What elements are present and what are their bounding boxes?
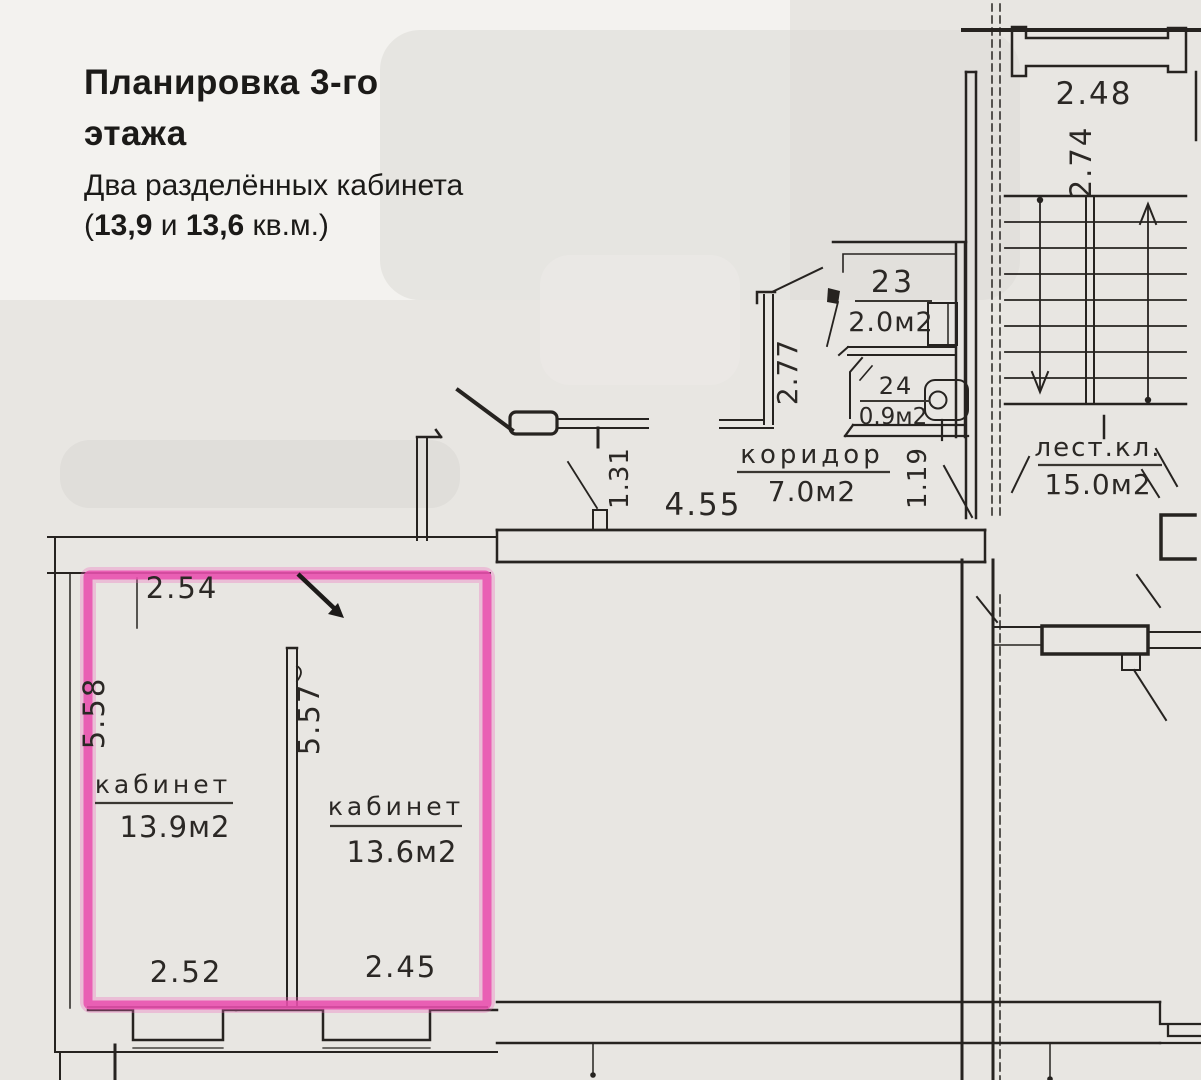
sink-counter	[458, 390, 648, 447]
dim-4-55: 4.55	[664, 487, 741, 523]
floor-plan-scan: Планировка 3-го этажа Два разделённых ка…	[0, 0, 1201, 1080]
dim-2-77: 2.77	[771, 339, 804, 405]
dim-5-57: 5.57	[292, 683, 326, 756]
area-note-prefix: (	[84, 209, 94, 242]
dim-2-48: 2.48	[1055, 76, 1132, 112]
room-23-area: 2.0м2	[848, 307, 934, 338]
dim-2-45: 2.45	[365, 950, 438, 984]
smudge-patch	[60, 440, 460, 508]
dim-5-58: 5.58	[77, 677, 111, 750]
door-jamb	[593, 510, 607, 530]
stairs-up-arrow-icon	[1140, 204, 1156, 403]
south-exterior-wall-left	[55, 1010, 497, 1080]
page-title-line1: Планировка 3-го	[84, 58, 463, 109]
area-note-mid: и	[152, 209, 185, 242]
stairwell-name: лест.кл.	[1035, 433, 1162, 463]
dim-2-52: 2.52	[150, 955, 223, 989]
stairs	[1005, 196, 1186, 438]
office-1-area: 13.9м2	[120, 810, 231, 844]
dim-2-74: 2.74	[1064, 126, 1098, 199]
corridor-area: 7.0м2	[768, 475, 856, 508]
room-24-number: 24	[879, 372, 914, 400]
right-room-window	[995, 626, 1201, 720]
corridor-name: коридор	[740, 440, 883, 470]
office-2-name: кабинет	[328, 792, 464, 821]
south-exterior-wall-right	[497, 1002, 1201, 1080]
page-title-line2: этажа	[84, 109, 463, 160]
toilet-icon	[930, 392, 947, 409]
dim-1-31: 1.31	[605, 447, 635, 509]
area-note: (13,9 и 13,6 кв.м.)	[84, 206, 463, 245]
sink-icon	[510, 412, 557, 434]
annotation-block: Планировка 3-го этажа Два разделённых ка…	[84, 58, 463, 245]
radiator-icon	[1042, 626, 1148, 654]
dim-2-54: 2.54	[146, 571, 219, 605]
smudge-patch	[540, 255, 740, 385]
right-door-jamb	[1161, 515, 1195, 559]
dim-1-19: 1.19	[903, 447, 933, 509]
office-2-area: 13.6м2	[347, 835, 458, 869]
area-value-1: 13,9	[94, 209, 152, 242]
stairs-down-arrow-icon	[1032, 197, 1048, 392]
area-note-suffix: кв.м.)	[244, 209, 329, 242]
subtitle: Два разделённых кабинета	[84, 166, 463, 207]
room-23-number: 23	[871, 265, 915, 300]
area-value-2: 13,6	[186, 209, 244, 242]
office-1-name: кабинет	[95, 770, 231, 799]
room-24-area: 0.9м2	[859, 404, 928, 430]
stairwell-area: 15.0м2	[1044, 468, 1151, 501]
